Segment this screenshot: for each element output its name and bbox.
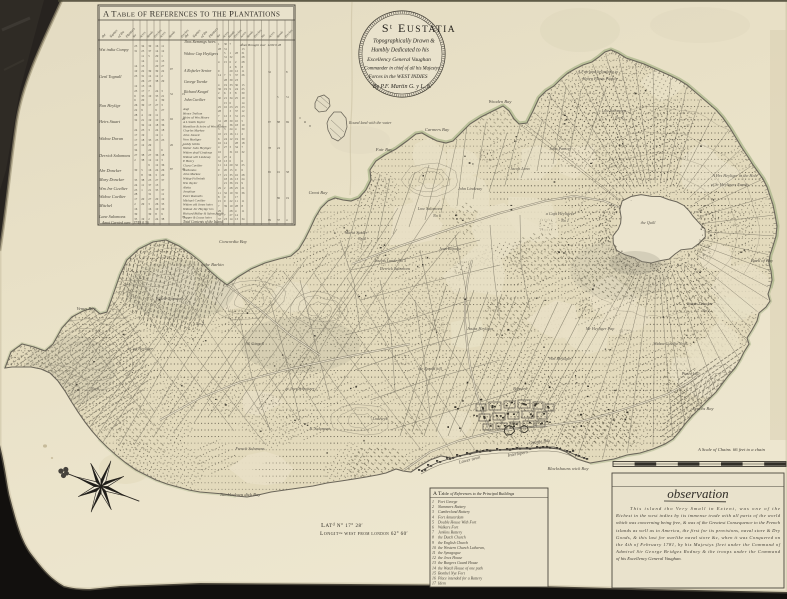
svg-text:32: 32 <box>141 123 145 127</box>
svg-text:38: 38 <box>141 153 145 157</box>
svg-text:10: 10 <box>155 207 159 211</box>
svg-text:11: 11 <box>161 192 164 196</box>
svg-text:W. Gingell: W. Gingell <box>246 341 265 346</box>
svg-text:14: 14 <box>155 49 159 53</box>
svg-text:29: 29 <box>155 54 159 58</box>
svg-text:16: 16 <box>155 44 159 48</box>
svg-text:A Hrs Heyliger in the Hole: A Hrs Heyliger in the Hole <box>711 173 757 178</box>
svg-text:Walkers Fort: Walkers Fort <box>438 526 459 530</box>
svg-text:26: 26 <box>182 117 186 121</box>
svg-text:2: 2 <box>432 505 434 509</box>
svg-text:Mr Heyliger Pap: Mr Heyliger Pap <box>585 326 615 331</box>
svg-text:23: 23 <box>134 74 138 78</box>
svg-text:27: 27 <box>161 108 165 112</box>
svg-text:23: 23 <box>141 128 145 132</box>
svg-text:35: 35 <box>161 118 165 122</box>
svg-text:Fort George: Fort George <box>437 500 458 504</box>
svg-text:24: 24 <box>134 183 138 187</box>
svg-text:28: 28 <box>134 192 138 196</box>
svg-text:Wst india Compy: Wst india Compy <box>99 47 129 52</box>
svg-text:30: 30 <box>134 168 138 172</box>
svg-text:37: 37 <box>161 178 165 182</box>
svg-text:23: 23 <box>148 178 152 182</box>
svg-text:No 2: No 2 <box>701 308 710 313</box>
svg-text:George Toenke: George Toenke <box>184 80 208 84</box>
svg-text:31: 31 <box>134 49 138 53</box>
svg-text:N. Salomons: N. Salomons <box>308 426 331 431</box>
svg-text:Heirs Stuart: Heirs Stuart <box>98 119 121 124</box>
svg-text:29: 29 <box>148 143 152 147</box>
svg-text:29: 29 <box>161 79 165 83</box>
svg-text:13: 13 <box>432 561 436 565</box>
svg-text:14: 14 <box>432 566 436 570</box>
svg-text:19: 19 <box>148 118 152 122</box>
svg-text:Simon Doncker: Simon Doncker <box>687 301 713 306</box>
svg-text:5: 5 <box>432 520 434 524</box>
svg-text:Low Salomons: Low Salomons <box>601 108 627 113</box>
svg-text:27: 27 <box>161 64 165 68</box>
svg-text:Commander in chief of all his: Commander in chief of all his Majestys <box>364 67 440 72</box>
svg-text:39: 39 <box>134 212 138 216</box>
svg-text:35: 35 <box>161 202 165 206</box>
svg-text:25: 25 <box>141 49 145 53</box>
svg-text:12: 12 <box>155 158 159 162</box>
svg-text:Fort Amsterdam: Fort Amsterdam <box>437 515 464 519</box>
svg-text:Wm Taylor: Wm Taylor <box>183 181 198 185</box>
svg-text:26: 26 <box>134 103 138 107</box>
svg-text:Genl Tognall: Genl Tognall <box>99 74 122 79</box>
svg-text:Blackshauns wick Bay: Blackshauns wick Bay <box>547 466 589 471</box>
svg-text:Widout will Lindesay: Widout will Lindesay <box>183 155 211 159</box>
svg-text:Widow Cap Heyligers: Widow Cap Heyligers <box>184 52 219 56</box>
svg-text:Widow Cuvilier: Widow Cuvilier <box>99 194 126 199</box>
svg-text:No 4: No 4 <box>614 115 623 120</box>
svg-text:35: 35 <box>155 188 159 192</box>
svg-text:a Capt Heyligers: a Capt Heyligers <box>546 211 575 216</box>
svg-text:11: 11 <box>141 183 144 187</box>
svg-text:52: 52 <box>170 92 174 96</box>
svg-text:Abr Doncker: Abr Doncker <box>98 168 122 173</box>
svg-text:French Salomons: French Salomons <box>234 446 265 451</box>
svg-text:12: 12 <box>155 163 159 167</box>
svg-text:27: 27 <box>155 103 159 107</box>
svg-text:Concordia Bay: Concordia Bay <box>219 239 248 244</box>
svg-text:Great Bay: Great Bay <box>309 190 329 195</box>
svg-text:Amot Brought over 1209 0 28: Amot Brought over 1209 0 28 <box>239 43 281 47</box>
svg-text:13: 13 <box>141 64 145 68</box>
svg-text:Wm Heyliger: Wm Heyliger <box>549 356 572 361</box>
svg-text:12: 12 <box>161 49 165 53</box>
svg-text:14: 14 <box>141 59 145 63</box>
svg-text:10: 10 <box>148 94 152 98</box>
svg-text:20: 20 <box>155 64 159 68</box>
svg-text:the Dutch Church: the Dutch Church <box>438 536 466 540</box>
svg-text:Richest in the west indies by: Richest in the west indies by its immens… <box>615 513 781 518</box>
svg-text:Mitchel: Mitchel <box>98 203 113 208</box>
svg-text:24: 24 <box>155 89 159 93</box>
svg-text:36: 36 <box>155 153 159 157</box>
svg-text:Bernard: Bernard <box>513 386 528 391</box>
svg-text:19: 19 <box>141 133 145 137</box>
svg-text:No 6: No 6 <box>432 213 442 218</box>
svg-text:Lodewyk: Lodewyk <box>372 416 388 421</box>
svg-text:32: 32 <box>134 118 138 122</box>
svg-text:37: 37 <box>148 183 152 187</box>
svg-text:51: 51 <box>286 95 290 99</box>
svg-text:Mary Doncker: Mary Doncker <box>98 177 125 182</box>
svg-text:Henry Trellum: Henry Trellum <box>182 111 203 115</box>
svg-text:Cumberland Battery: Cumberland Battery <box>438 510 470 514</box>
svg-text:31: 31 <box>148 192 152 196</box>
svg-text:Vero Heyliger: Vero Heyliger <box>183 137 202 141</box>
svg-text:28: 28 <box>134 113 138 117</box>
svg-text:Richard Keagel: Richard Keagel <box>183 90 208 94</box>
svg-text:observation: observation <box>667 486 728 501</box>
svg-text:Place intended for a Battery: Place intended for a Battery <box>437 577 482 581</box>
svg-text:17: 17 <box>141 89 145 93</box>
svg-text:24: 24 <box>155 168 159 172</box>
svg-text:87: 87 <box>170 167 174 171</box>
svg-text:19: 19 <box>182 92 186 96</box>
svg-text:Amot Carried over 3749 0 36: Amot Carried over 3749 0 36 <box>101 221 149 225</box>
svg-text:Walter John Heyliger: Walter John Heyliger <box>183 146 212 150</box>
svg-text:3: 3 <box>432 510 434 514</box>
svg-text:36: 36 <box>161 123 165 127</box>
svg-text:27: 27 <box>134 143 138 147</box>
svg-text:the Jews House: the Jews House <box>438 556 462 560</box>
svg-text:Jonathan: Jonathan <box>183 190 196 194</box>
svg-text:Wm Jnr Cuvilier: Wm Jnr Cuvilier <box>99 186 128 191</box>
svg-text:A Scale of Chains 66 feet to: A Scale of Chains 66 feet to a chain <box>697 447 766 452</box>
svg-text:Derrick Salomons: Derrick Salomons <box>98 153 130 158</box>
svg-text:76: 76 <box>182 215 186 219</box>
svg-text:Forces in the WEST INDIES: Forces in the WEST INDIES <box>367 74 427 80</box>
svg-text:14: 14 <box>134 64 138 68</box>
svg-text:Carmers Bay: Carmers Bay <box>425 127 450 132</box>
svg-text:Thos Remmigs heirs: Thos Remmigs heirs <box>184 40 216 44</box>
svg-text:29: 29 <box>141 202 145 206</box>
svg-text:16: 16 <box>148 207 152 211</box>
svg-text:27: 27 <box>148 153 152 157</box>
svg-text:Widell Comstone: Widell Comstone <box>156 296 185 301</box>
svg-text:Widout Jnr Heyligr hrs: Widout Jnr Heyligr hrs <box>183 207 214 211</box>
svg-text:11: 11 <box>155 113 158 117</box>
svg-text:A L Smith Taylor: A L Smith Taylor <box>182 120 206 124</box>
svg-text:19: 19 <box>161 207 165 211</box>
svg-text:19: 19 <box>148 113 152 117</box>
svg-text:26: 26 <box>170 143 174 147</box>
svg-text:Charles Markoe: Charles Markoe <box>183 129 205 133</box>
svg-text:24: 24 <box>155 217 159 221</box>
svg-text:58: 58 <box>286 170 290 174</box>
svg-text:12: 12 <box>432 556 436 560</box>
svg-text:35: 35 <box>134 178 138 182</box>
svg-text:A Rofseler Senior: A Rofseler Senior <box>183 69 212 73</box>
svg-text:Widow Doran: Widow Doran <box>99 136 123 141</box>
svg-text:Tumbledown dick Bay: Tumbledown dick Bay <box>220 492 262 497</box>
svg-text:No 3: No 3 <box>357 236 366 241</box>
svg-text:6: 6 <box>432 526 434 530</box>
svg-text:18: 18 <box>141 138 145 142</box>
svg-text:17: 17 <box>134 138 138 142</box>
svg-text:20: 20 <box>141 197 145 201</box>
svg-text:36: 36 <box>161 163 165 167</box>
svg-text:11: 11 <box>155 59 158 63</box>
svg-text:39: 39 <box>155 69 159 73</box>
svg-text:11: 11 <box>161 44 164 48</box>
svg-text:99: 99 <box>268 218 272 222</box>
svg-text:the Barkin: the Barkin <box>204 262 224 267</box>
svg-text:19: 19 <box>161 197 165 201</box>
svg-text:Total Contents of the Island: Total Contents of the Island <box>183 220 223 224</box>
svg-text:23: 23 <box>161 138 165 142</box>
svg-text:the Synagogue: the Synagogue <box>438 551 461 555</box>
svg-text:a Cap Heyliger: a Cap Heyliger <box>127 346 153 351</box>
svg-text:18: 18 <box>161 128 165 132</box>
svg-text:Topographically Drawn &: Topographically Drawn & <box>373 39 435 45</box>
svg-text:Joseph Lande No 5: Joseph Lande No 5 <box>374 258 406 263</box>
svg-text:24: 24 <box>277 146 281 150</box>
svg-text:20: 20 <box>141 98 145 102</box>
svg-text:91: 91 <box>277 170 281 174</box>
svg-text:11: 11 <box>141 54 144 58</box>
svg-text:23: 23 <box>134 44 138 48</box>
svg-text:39: 39 <box>148 212 152 216</box>
svg-text:Henry Plants Family: Henry Plants Family <box>581 76 617 81</box>
svg-text:24: 24 <box>134 128 138 132</box>
svg-text:Humbly Dedicated to his: Humbly Dedicated to his <box>370 48 430 54</box>
svg-text:17: 17 <box>134 133 138 137</box>
svg-text:10: 10 <box>432 546 436 550</box>
svg-text:Back of Bay: Back of Bay <box>751 258 774 263</box>
svg-text:12: 12 <box>148 123 152 127</box>
svg-text:Double House With Fort: Double House With Fort <box>437 520 477 524</box>
svg-text:the Watch House of one path: the Watch House of one path <box>438 566 483 570</box>
svg-text:27: 27 <box>134 153 138 157</box>
svg-text:26: 26 <box>155 202 159 206</box>
svg-text:78: 78 <box>268 146 272 150</box>
svg-text:69: 69 <box>286 120 290 124</box>
svg-text:38: 38 <box>141 158 145 162</box>
svg-text:12: 12 <box>141 143 145 147</box>
svg-text:Maria Stader: Maria Stader <box>344 230 368 235</box>
svg-text:20: 20 <box>161 173 165 177</box>
svg-text:22: 22 <box>134 108 138 112</box>
svg-text:37: 37 <box>148 49 152 53</box>
svg-text:88: 88 <box>277 120 281 124</box>
svg-text:Fair Bay: Fair Bay <box>375 147 393 152</box>
svg-text:10: 10 <box>155 118 159 122</box>
svg-text:12: 12 <box>148 74 152 78</box>
svg-text:22: 22 <box>161 69 165 73</box>
svg-text:17: 17 <box>134 197 138 201</box>
svg-text:9: 9 <box>432 541 434 545</box>
svg-text:27: 27 <box>148 79 152 83</box>
svg-text:12: 12 <box>148 158 152 162</box>
svg-text:A Fairland belonging to: A Fairland belonging to <box>577 69 619 74</box>
svg-text:Venus Bay: Venus Bay <box>76 306 96 311</box>
svg-text:65: 65 <box>268 170 272 174</box>
svg-text:Lane Salomons: Lane Salomons <box>98 214 126 219</box>
svg-text:31: 31 <box>141 74 145 78</box>
svg-text:Clara Cuvilier: Clara Cuvilier <box>183 164 203 168</box>
svg-text:Lynchs Bay: Lynchs Bay <box>691 406 714 411</box>
svg-text:Admiral Sir George Bridges Rod: Admiral Sir George Bridges Rodney & the … <box>615 549 781 554</box>
svg-text:16: 16 <box>134 207 138 211</box>
svg-text:21: 21 <box>141 118 145 122</box>
svg-text:the Burgers Guard House: the Burgers Guard House <box>438 561 478 565</box>
svg-text:the Quill: the Quill <box>641 220 657 225</box>
svg-text:26: 26 <box>161 168 165 172</box>
svg-text:22: 22 <box>141 69 145 73</box>
svg-text:the English Church: the English Church <box>438 541 468 545</box>
svg-text:40: 40 <box>182 167 186 171</box>
svg-text:34: 34 <box>134 148 138 152</box>
svg-text:4: 4 <box>432 515 434 519</box>
svg-text:17: 17 <box>148 103 152 107</box>
svg-text:No 1: No 1 <box>560 218 569 223</box>
svg-text:8: 8 <box>432 536 434 540</box>
svg-text:Low Salomons: Low Salomons <box>417 206 443 211</box>
svg-text:38: 38 <box>155 79 159 83</box>
svg-text:John Panton: John Panton <box>549 146 570 151</box>
svg-text:Michael Cuvilier: Michael Cuvilier <box>182 198 206 202</box>
svg-text:13: 13 <box>155 183 159 187</box>
svg-text:23: 23 <box>155 138 159 142</box>
svg-text:Jacob Leno: Jacob Leno <box>510 166 529 171</box>
svg-text:of Sr Heyligers Family: of Sr Heyligers Family <box>711 182 749 187</box>
svg-text:34: 34 <box>141 44 145 48</box>
svg-text:John Lindesay: John Lindesay <box>458 186 482 191</box>
svg-text:12: 12 <box>134 84 138 88</box>
svg-text:13: 13 <box>141 84 145 88</box>
svg-text:16: 16 <box>432 577 436 581</box>
svg-text:10: 10 <box>134 69 138 73</box>
svg-text:Non Heyligr: Non Heyligr <box>98 103 121 108</box>
svg-text:No 9: No 9 <box>90 386 100 391</box>
svg-text:23: 23 <box>134 89 138 93</box>
svg-text:Idem: Idem <box>437 582 446 586</box>
svg-text:Excellency General Vaughan: Excellency General Vaughan <box>366 57 431 63</box>
svg-text:John Markoe: John Markoe <box>183 172 201 176</box>
svg-text:11: 11 <box>432 551 436 555</box>
svg-text:Jenkins Battery: Jenkins Battery <box>438 531 462 535</box>
svg-text:Widow Cuvilje No 8: Widow Cuvilje No 8 <box>653 341 688 346</box>
svg-text:92: 92 <box>170 117 174 121</box>
svg-text:No 2: No 2 <box>195 321 204 326</box>
svg-text:39: 39 <box>141 103 145 107</box>
svg-text:Round land with the water: Round land with the water <box>348 120 392 125</box>
svg-text:26: 26 <box>141 79 145 83</box>
svg-text:97: 97 <box>170 67 174 71</box>
svg-text:32: 32 <box>268 70 272 74</box>
svg-text:30: 30 <box>148 44 152 48</box>
svg-text:Slammers Battery: Slammers Battery <box>438 505 466 509</box>
svg-text:18: 18 <box>155 123 159 127</box>
svg-text:39: 39 <box>148 69 152 73</box>
svg-text:of his Excellency General Vaug: of his Excellency General Vaughan. <box>616 556 682 561</box>
svg-text:Wooden Bay: Wooden Bay <box>489 99 513 104</box>
svg-text:1: 1 <box>432 500 434 504</box>
svg-text:27: 27 <box>148 197 152 201</box>
svg-text:20: 20 <box>155 197 159 201</box>
svg-text:Derrick Salomons: Derrick Salomons <box>379 266 411 271</box>
svg-text:Bombel Nye Fort: Bombel Nye Fort <box>438 571 466 575</box>
svg-text:at Joes Schwitzer: at Joes Schwitzer <box>285 386 314 391</box>
svg-text:Jean Rapalje: Jean Rapalje <box>439 246 461 251</box>
svg-text:36: 36 <box>148 173 152 177</box>
svg-text:38: 38 <box>161 217 165 221</box>
svg-text:Pieter hill: Pieter hill <box>681 371 700 376</box>
svg-text:24: 24 <box>148 148 152 152</box>
svg-text:Josias Heyliger: Josias Heyliger <box>467 326 494 331</box>
svg-text:15: 15 <box>432 571 436 575</box>
svg-text:37: 37 <box>277 218 281 222</box>
svg-text:12: 12 <box>155 74 159 78</box>
svg-text:16: 16 <box>148 168 152 172</box>
svg-text:33: 33 <box>148 138 152 142</box>
svg-text:12: 12 <box>155 133 159 137</box>
svg-text:John Cuvilier: John Cuvilier <box>184 98 206 102</box>
svg-text:16: 16 <box>148 84 152 88</box>
svg-text:13: 13 <box>161 59 165 63</box>
svg-text:18: 18 <box>161 153 165 157</box>
svg-text:27: 27 <box>155 178 159 182</box>
svg-text:97: 97 <box>268 120 272 124</box>
svg-text:39: 39 <box>161 98 165 102</box>
svg-text:38: 38 <box>141 178 145 182</box>
svg-text:the Round hill: the Round hill <box>418 366 443 371</box>
svg-text:86: 86 <box>277 196 281 200</box>
svg-text:By P.F. Martin G. y L. S.: By P.F. Martin G. y L. S. <box>373 84 432 90</box>
svg-text:24: 24 <box>155 128 159 132</box>
svg-text:19: 19 <box>286 196 290 200</box>
